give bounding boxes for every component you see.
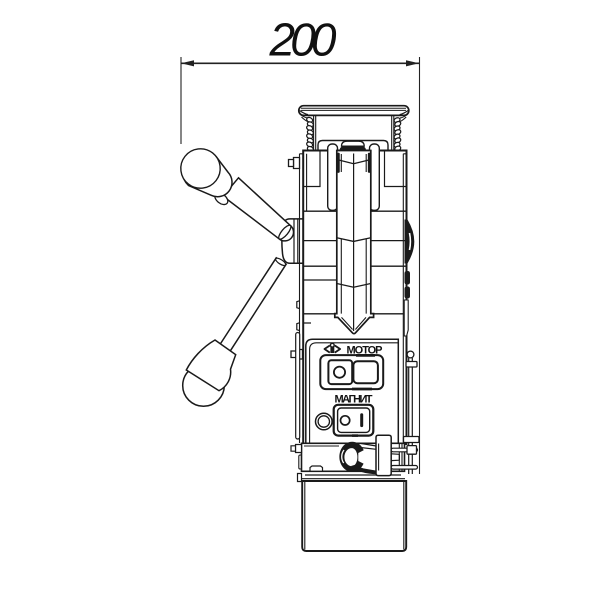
svg-text:МАГНИТ: МАГНИТ: [335, 393, 373, 405]
svg-text:200: 200: [269, 14, 337, 66]
